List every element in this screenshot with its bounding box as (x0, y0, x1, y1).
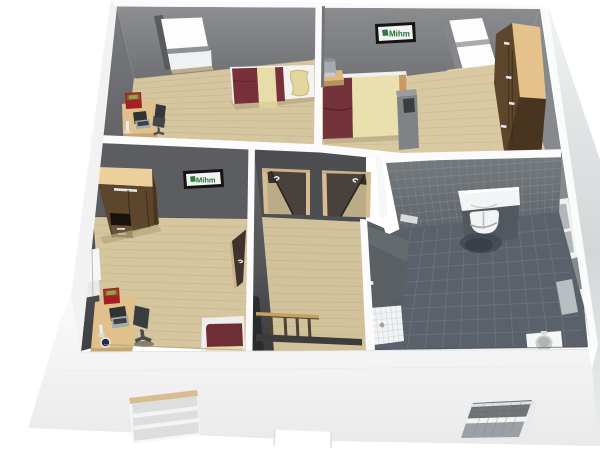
svg-text:Mihm: Mihm (196, 176, 216, 185)
svg-text:Mihm: Mihm (389, 30, 410, 39)
